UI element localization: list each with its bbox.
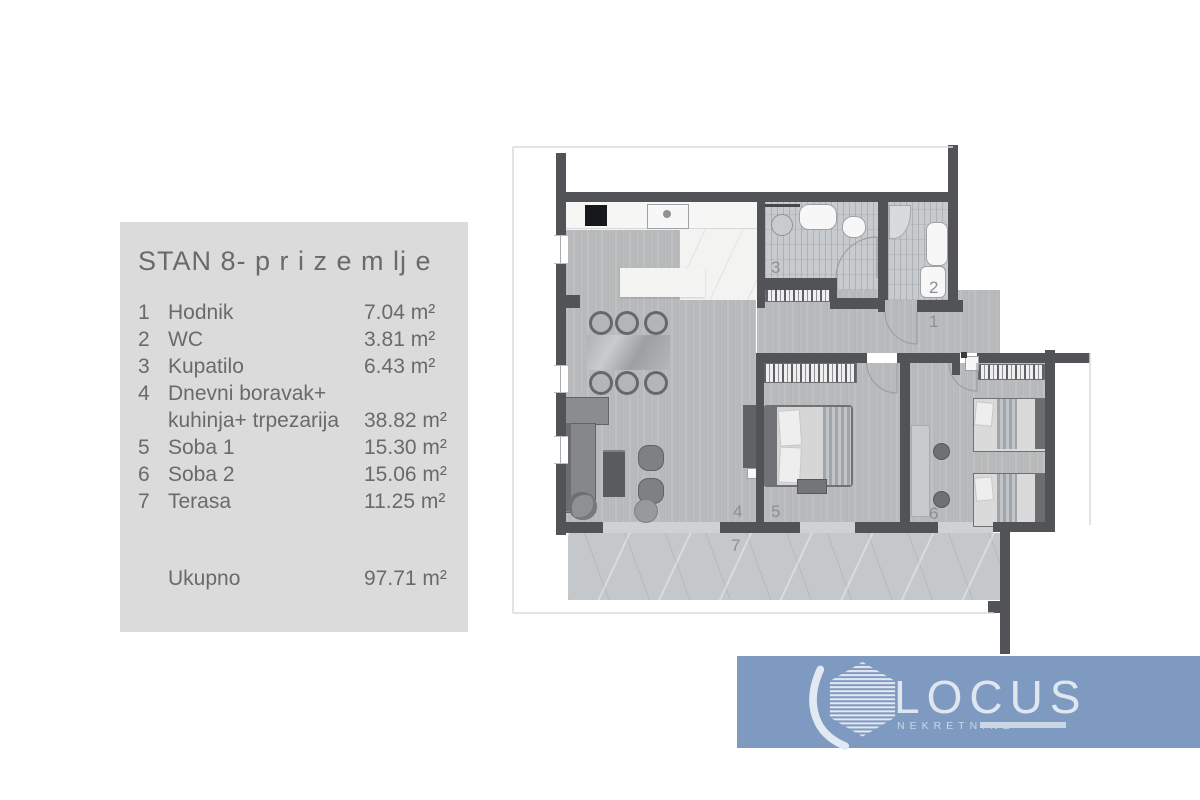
room-number: 2: [138, 326, 168, 353]
room-row-dnevni-boravak: 4 Dnevni boravak+ kuhinja+ trpezarija 38…: [120, 380, 468, 434]
room-area: 38.82 m²: [364, 407, 468, 434]
room-name: WC: [168, 326, 364, 353]
room-area: 15.06 m²: [364, 461, 468, 488]
room-number: 3: [138, 353, 168, 380]
room-list: 1 Hodnik 7.04 m² 2 WC 3.81 m² 3 Kupatilo…: [120, 299, 468, 592]
room-label-dnevni: 4: [733, 502, 742, 522]
page: STAN 8- p r i z e m lj e 1 Hodnik 7.04 m…: [0, 0, 1200, 800]
room-number: 6: [138, 461, 168, 488]
apartment-legend-panel: STAN 8- p r i z e m lj e 1 Hodnik 7.04 m…: [120, 222, 468, 632]
apartment-title: STAN 8- p r i z e m lj e: [138, 246, 468, 277]
total-label: Ukupno: [168, 565, 364, 592]
room-number: 4: [138, 380, 168, 407]
room-label-hodnik: 1: [929, 312, 938, 332]
room-row-wc: 2 WC 3.81 m²: [120, 326, 468, 353]
total-row: Ukupno 97.71 m²: [120, 565, 468, 592]
brand-name: LOCUS: [894, 670, 1087, 724]
room-row-soba-2: 6 Soba 2 15.06 m²: [120, 461, 468, 488]
room-name: Hodnik: [168, 299, 364, 326]
locus-logo-band: LOCUS NEKRETNINE: [737, 656, 1200, 748]
room-area: 6.43 m²: [364, 353, 468, 380]
room-label-soba1: 5: [771, 502, 780, 522]
room-area: 11.25 m²: [364, 488, 468, 515]
room-row-kupatilo: 3 Kupatilo 6.43 m²: [120, 353, 468, 380]
locus-hexagon-icon: [799, 658, 903, 750]
room-label-terasa: 7: [731, 536, 740, 556]
brand-underline: [980, 722, 1066, 728]
room-name: Dnevni boravak+ kuhinja+ trpezarija: [168, 380, 364, 434]
room-name: Kupatilo: [168, 353, 364, 380]
floor-plan: 1 2 3 4 5 6 7: [505, 140, 1105, 665]
room-row-hodnik: 1 Hodnik 7.04 m²: [120, 299, 468, 326]
room-name: Soba 2: [168, 461, 364, 488]
room-name: Soba 1: [168, 434, 364, 461]
room-label-kupatilo: 3: [771, 258, 780, 278]
room-area: 15.30 m²: [364, 434, 468, 461]
room-row-soba-1: 5 Soba 1 15.30 m²: [120, 434, 468, 461]
room-area: 3.81 m²: [364, 326, 468, 353]
room-label-soba2: 6: [929, 504, 938, 524]
room-number: 7: [138, 488, 168, 515]
room-area: 7.04 m²: [364, 299, 468, 326]
plot-boundary: [513, 147, 1090, 613]
room-number: 1: [138, 299, 168, 326]
room-label-wc: 2: [929, 278, 938, 298]
total-area: 97.71 m²: [364, 565, 468, 592]
door-swing-arcs: [505, 140, 1105, 665]
room-row-terasa: 7 Terasa 11.25 m²: [120, 488, 468, 515]
room-name: Terasa: [168, 488, 364, 515]
room-number: 5: [138, 434, 168, 461]
